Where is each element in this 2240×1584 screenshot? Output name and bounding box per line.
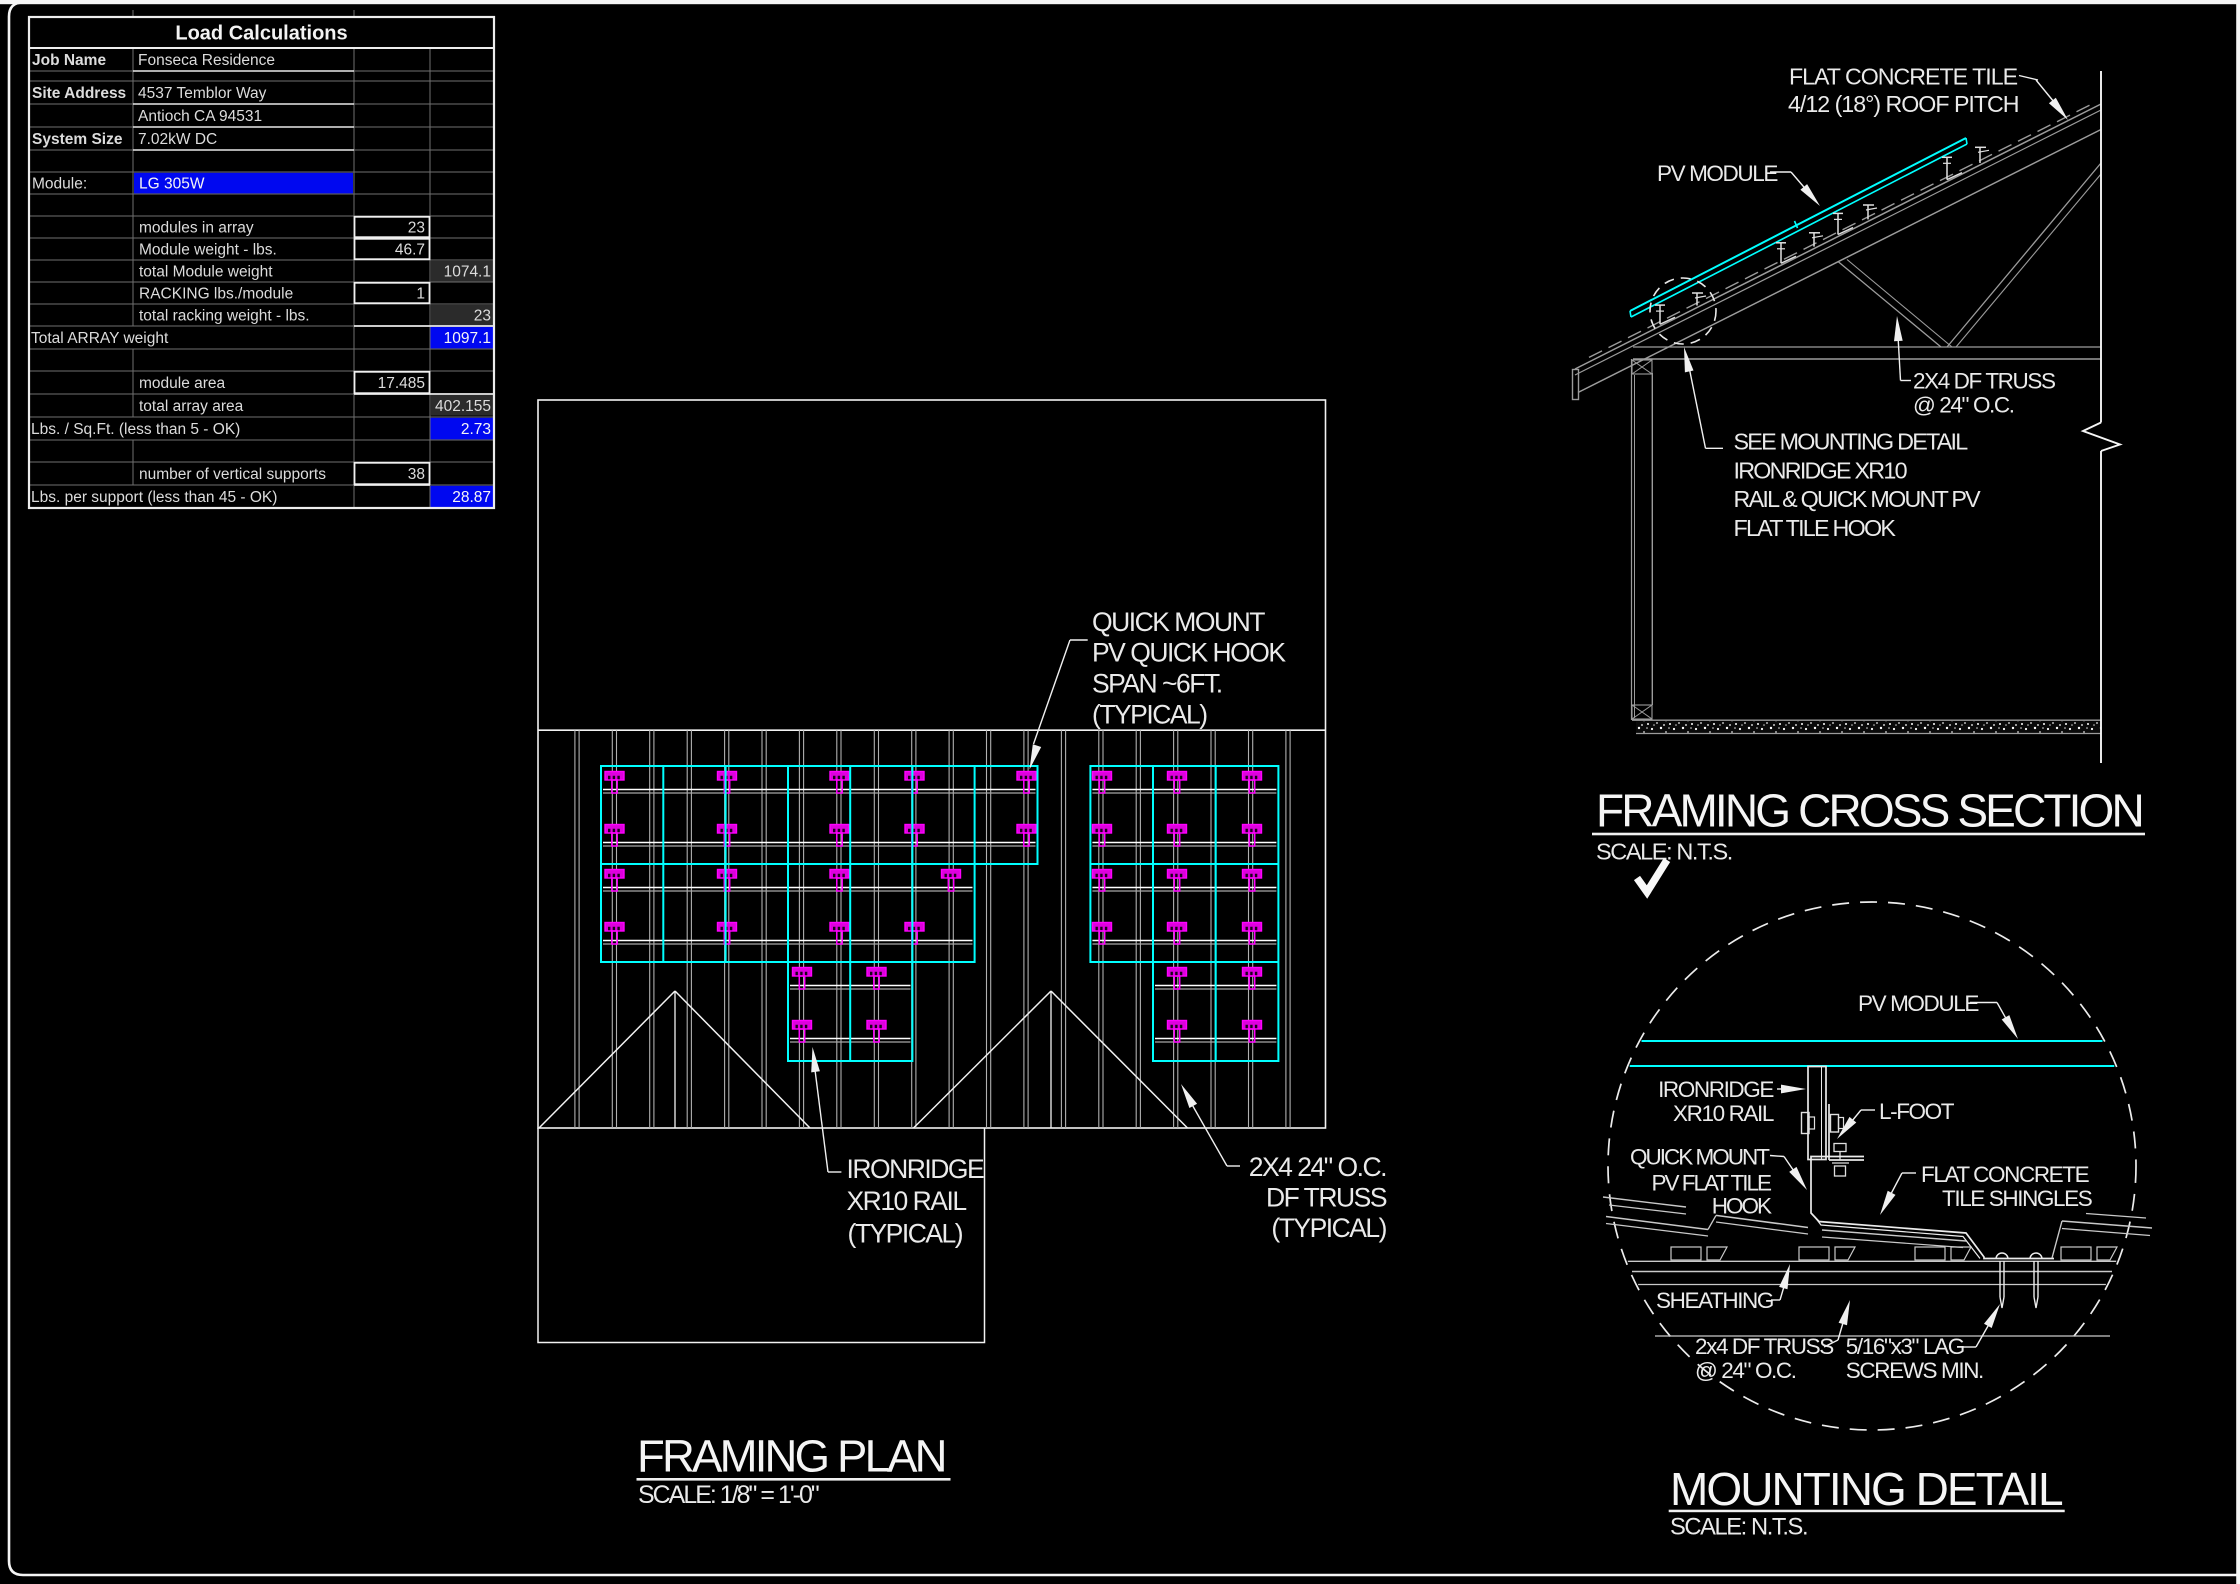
svg-text:System Size: System Size bbox=[32, 131, 123, 148]
svg-text:Module weight - lbs.: Module weight - lbs. bbox=[139, 241, 277, 258]
svg-text:1097.1: 1097.1 bbox=[444, 330, 491, 347]
svg-text:SEE MOUNTING DETAIL: SEE MOUNTING DETAIL bbox=[1734, 429, 1969, 455]
svg-text:PV MODULE: PV MODULE bbox=[1858, 991, 1979, 1016]
svg-text:SCREWS MIN.: SCREWS MIN. bbox=[1846, 1358, 1983, 1383]
svg-text:Load Calculations: Load Calculations bbox=[175, 23, 347, 45]
svg-text:SHEATHING: SHEATHING bbox=[1656, 1288, 1773, 1313]
svg-text:Fonseca Residence: Fonseca Residence bbox=[138, 52, 275, 69]
svg-text:total racking weight - lbs.: total racking weight - lbs. bbox=[139, 307, 310, 324]
svg-text:FLAT CONCRETE: FLAT CONCRETE bbox=[1921, 1162, 2090, 1187]
svg-text:QUICK MOUNT: QUICK MOUNT bbox=[1630, 1145, 1770, 1170]
svg-text:2.73: 2.73 bbox=[461, 421, 491, 438]
svg-text:2x4 DF TRUSS: 2x4 DF TRUSS bbox=[1695, 1334, 1833, 1359]
svg-text:5/16"x3" LAG: 5/16"x3" LAG bbox=[1846, 1334, 1964, 1359]
svg-text:IRONRIDGE: IRONRIDGE bbox=[847, 1154, 985, 1184]
svg-text:DF TRUSS: DF TRUSS bbox=[1266, 1183, 1387, 1213]
svg-text:46.7: 46.7 bbox=[395, 241, 425, 258]
svg-text:SPAN ~6FT.: SPAN ~6FT. bbox=[1092, 669, 1222, 699]
svg-text:FLAT CONCRETE TILE: FLAT CONCRETE TILE bbox=[1789, 64, 2018, 90]
svg-text:XR10 RAIL: XR10 RAIL bbox=[1673, 1101, 1774, 1126]
svg-text:total Module weight: total Module weight bbox=[139, 263, 273, 280]
svg-text:module area: module area bbox=[139, 375, 226, 392]
svg-text:RACKING lbs./module: RACKING lbs./module bbox=[139, 285, 293, 302]
svg-text:Lbs. per support (less than 45: Lbs. per support (less than 45 - OK) bbox=[31, 489, 277, 506]
svg-text:modules in array: modules in array bbox=[139, 219, 254, 236]
svg-text:number of vertical supports: number of vertical supports bbox=[139, 466, 326, 483]
svg-text:RAIL & QUICK MOUNT PV: RAIL & QUICK MOUNT PV bbox=[1734, 486, 1982, 512]
svg-text:@ 24" O.C.: @ 24" O.C. bbox=[1695, 1358, 1796, 1383]
svg-text:17.485: 17.485 bbox=[378, 375, 425, 392]
svg-text:PV MODULE: PV MODULE bbox=[1657, 161, 1778, 186]
svg-text:Lbs. / Sq.Ft. (less than 5 - O: Lbs. / Sq.Ft. (less than 5 - OK) bbox=[31, 421, 240, 438]
svg-text:(TYPICAL): (TYPICAL) bbox=[1092, 700, 1207, 730]
svg-text:LG 305W: LG 305W bbox=[139, 175, 205, 192]
svg-text:FLAT TILE HOOK: FLAT TILE HOOK bbox=[1734, 515, 1897, 541]
svg-text:total array area: total array area bbox=[139, 398, 244, 415]
svg-text:PV QUICK HOOK: PV QUICK HOOK bbox=[1092, 638, 1286, 668]
svg-text:4537 Temblor Way: 4537 Temblor Way bbox=[138, 85, 267, 102]
svg-text:(TYPICAL): (TYPICAL) bbox=[848, 1219, 963, 1249]
svg-text:4/12 (18°) ROOF PITCH: 4/12 (18°) ROOF PITCH bbox=[1788, 91, 2019, 117]
svg-text:@ 24" O.C.: @ 24" O.C. bbox=[1913, 393, 2014, 418]
svg-text:(TYPICAL): (TYPICAL) bbox=[1271, 1213, 1386, 1243]
svg-text:23: 23 bbox=[474, 307, 491, 324]
svg-text:Job Name: Job Name bbox=[32, 52, 106, 69]
svg-text:Site Address: Site Address bbox=[32, 85, 126, 102]
svg-text:IRONRIDGE XR10: IRONRIDGE XR10 bbox=[1734, 457, 1908, 483]
svg-text:IRONRIDGE: IRONRIDGE bbox=[1658, 1077, 1774, 1102]
svg-text:XR10 RAIL: XR10 RAIL bbox=[847, 1186, 967, 1216]
svg-text:2X4 24" O.C.: 2X4 24" O.C. bbox=[1249, 1152, 1386, 1182]
svg-text:23: 23 bbox=[408, 219, 425, 236]
svg-text:Total ARRAY weight: Total ARRAY weight bbox=[31, 330, 169, 347]
svg-text:28.87: 28.87 bbox=[452, 489, 491, 506]
svg-text:SCALE: 1/8" = 1'-0": SCALE: 1/8" = 1'-0" bbox=[638, 1481, 819, 1509]
svg-text:7.02kW DC: 7.02kW DC bbox=[138, 131, 217, 148]
svg-text:TILE SHINGLES: TILE SHINGLES bbox=[1942, 1186, 2092, 1211]
svg-text:Antioch CA 94531: Antioch CA 94531 bbox=[138, 108, 262, 125]
svg-text:1: 1 bbox=[416, 285, 425, 302]
svg-text:QUICK MOUNT: QUICK MOUNT bbox=[1092, 607, 1265, 637]
svg-text:FRAMING PLAN: FRAMING PLAN bbox=[637, 1431, 945, 1482]
svg-text:38: 38 bbox=[408, 466, 425, 483]
svg-text:MOUNTING DETAIL: MOUNTING DETAIL bbox=[1670, 1463, 2063, 1515]
svg-text:402.155: 402.155 bbox=[435, 398, 491, 415]
svg-text:SCALE: N.T.S.: SCALE: N.T.S. bbox=[1670, 1515, 1807, 1541]
svg-text:2X4 DF TRUSS: 2X4 DF TRUSS bbox=[1913, 368, 2055, 393]
svg-text:Module:: Module: bbox=[32, 175, 87, 192]
svg-text:PV FLAT TILE: PV FLAT TILE bbox=[1651, 1170, 1772, 1195]
svg-text:L-FOOT: L-FOOT bbox=[1879, 1099, 1955, 1124]
svg-text:HOOK: HOOK bbox=[1712, 1194, 1772, 1219]
svg-text:FRAMING CROSS SECTION: FRAMING CROSS SECTION bbox=[1596, 785, 2142, 837]
svg-text:1074.1: 1074.1 bbox=[444, 263, 491, 280]
